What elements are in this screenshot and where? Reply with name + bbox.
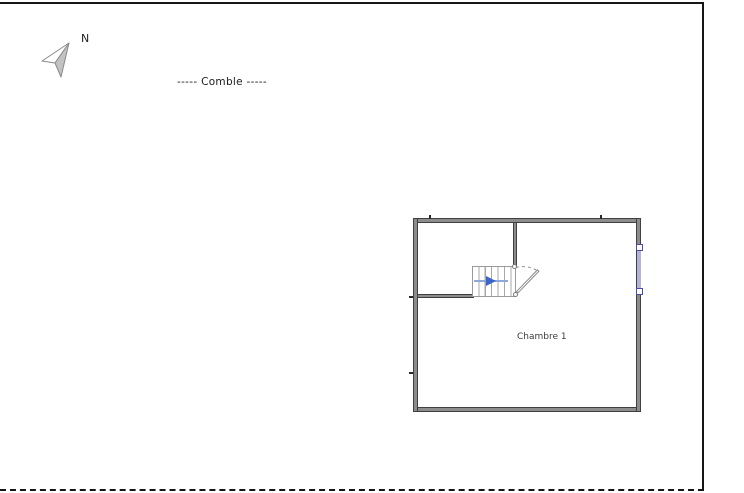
wall-joint-tick — [600, 215, 602, 219]
window-handle-bottom[interactable] — [636, 288, 643, 295]
door-leaf[interactable] — [516, 269, 540, 293]
door-swing-arc — [0, 0, 744, 493]
floorplan-canvas[interactable]: N ----- Comble ----- Chambre 1 — [0, 0, 744, 493]
page-border-right — [702, 2, 704, 490]
wall-partition-vertical[interactable] — [513, 222, 517, 267]
stair-direction-arrow-icon — [486, 276, 496, 286]
wall-joint-tick — [409, 372, 413, 374]
wall-partition-horizontal[interactable] — [417, 294, 474, 298]
compass: N — [38, 28, 108, 86]
room-label[interactable]: Chambre 1 — [517, 332, 567, 342]
door-hinge-point — [513, 292, 518, 297]
north-label: N — [81, 32, 89, 45]
page-break-dashed-line — [0, 489, 704, 491]
window[interactable] — [637, 251, 642, 288]
door-hinge-point — [512, 264, 517, 269]
wall-bottom[interactable] — [413, 407, 641, 412]
floor-title: ----- Comble ----- — [177, 76, 267, 88]
wall-joint-tick — [409, 296, 413, 298]
page-border-top — [0, 2, 704, 4]
north-arrow-icon — [38, 30, 78, 80]
wall-joint-tick — [429, 215, 431, 219]
wall-top[interactable] — [413, 218, 641, 223]
window-handle-top[interactable] — [636, 244, 643, 251]
wall-left[interactable] — [413, 218, 418, 412]
